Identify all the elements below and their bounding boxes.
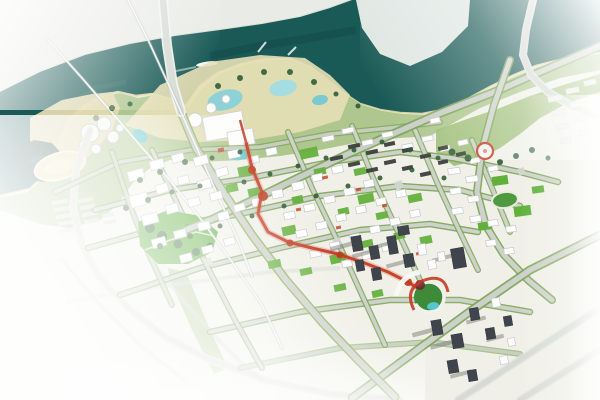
dark-towers — [469, 307, 480, 320]
fade-northwest — [0, 0, 220, 110]
street-trees — [311, 79, 317, 85]
campus-buildings — [448, 167, 461, 175]
dark-towers — [447, 359, 459, 374]
dark-towers — [485, 327, 496, 339]
campus-buildings — [450, 187, 462, 194]
park-pavilions — [222, 95, 230, 103]
fade-east — [500, 95, 600, 400]
dark-towers — [451, 333, 464, 349]
street-trees — [261, 69, 267, 75]
dark-towers — [467, 369, 478, 381]
campus-buildings — [466, 175, 479, 183]
campus-buildings — [468, 195, 480, 202]
street-trees — [356, 104, 361, 109]
campus-buildings — [486, 239, 497, 246]
campus-buildings — [470, 215, 482, 222]
street-trees — [287, 69, 293, 75]
fade-south — [60, 325, 425, 400]
campus-buildings — [488, 219, 499, 226]
street-trees — [237, 75, 243, 81]
masterplan-svg: Aerial bird's-eye rendering of a riversi… — [0, 0, 600, 400]
campus-buildings — [452, 207, 464, 214]
white-towers — [491, 297, 500, 307]
street-trees — [334, 92, 339, 97]
masterplan-rendering: Aerial bird's-eye rendering of a riversi… — [0, 0, 600, 400]
